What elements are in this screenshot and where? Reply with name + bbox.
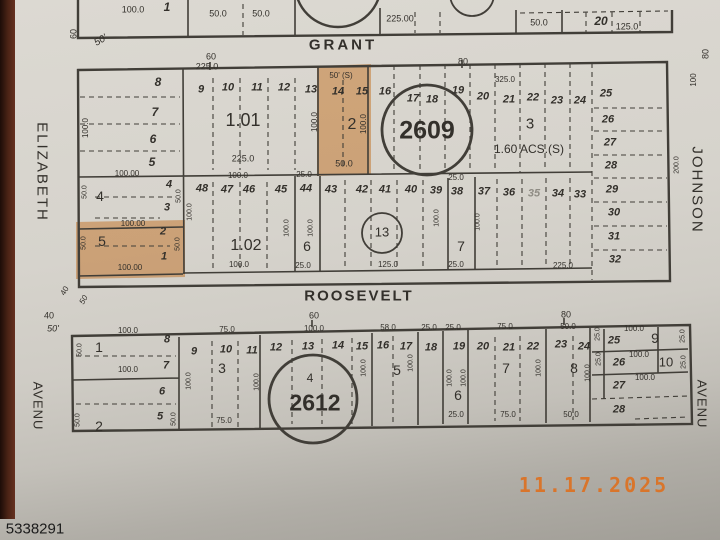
lot-circle-13: 13 bbox=[375, 226, 389, 239]
street-avenue-right: AVENU bbox=[696, 380, 709, 429]
map-label: 19 bbox=[453, 342, 465, 353]
map-label: 33 bbox=[574, 190, 586, 201]
map-label: 100.0 bbox=[82, 118, 90, 138]
map-label: 50.0 bbox=[81, 236, 88, 250]
map-label: 100.0 bbox=[361, 359, 368, 377]
map-label: 100.0 bbox=[624, 325, 644, 333]
map-label: 45 bbox=[275, 185, 287, 196]
map-label: 7 bbox=[152, 106, 159, 118]
map-label: 9 bbox=[191, 347, 197, 358]
map-label: 39 bbox=[430, 186, 442, 197]
parcel-2612-4: 4 bbox=[307, 372, 314, 384]
map-label: 225.0 bbox=[196, 63, 219, 72]
map-label: 25.0 bbox=[448, 174, 464, 182]
map-label: 40 bbox=[405, 185, 417, 196]
map-label: 25.0 bbox=[421, 324, 437, 332]
map-label: 50.0 bbox=[82, 185, 89, 199]
map-label: 100.00 bbox=[115, 170, 139, 178]
parcel-2: 2 bbox=[348, 117, 357, 133]
photo-id-number: 5338291 bbox=[6, 521, 64, 538]
parcel-4: 4 bbox=[96, 189, 104, 203]
map-label: 25.0 bbox=[680, 329, 687, 343]
map-label: 50.0 bbox=[252, 10, 270, 19]
map-label: 100.0 bbox=[434, 209, 441, 227]
map-label: 28 bbox=[605, 161, 617, 172]
map-label: 19 bbox=[452, 86, 464, 97]
parcel-2612-3: 3 bbox=[218, 361, 226, 375]
map-label: 15 bbox=[356, 87, 368, 98]
map-label: 14 bbox=[332, 87, 344, 98]
map-label: 50.0 bbox=[77, 343, 84, 357]
map-label: 50.0 bbox=[563, 411, 579, 419]
map-label: 50.0 bbox=[171, 412, 178, 426]
map-label: 28 bbox=[613, 405, 625, 416]
map-label: 21 bbox=[503, 95, 515, 106]
tax-map-photo: 100.0150.050.0225.0050.020125.06050'GRAN… bbox=[0, 0, 720, 540]
map-label: 100.0 bbox=[308, 219, 315, 237]
map-label: 17 bbox=[400, 342, 412, 353]
parcel-5: 5 bbox=[98, 234, 106, 248]
map-label: 40 bbox=[44, 312, 54, 321]
map-label: 9 bbox=[198, 85, 204, 96]
map-label: 1 bbox=[161, 252, 167, 263]
parcel-2612-9: 9 bbox=[651, 331, 659, 345]
parcel-2612-2: 2 bbox=[95, 419, 103, 433]
block-number-2612: 2612 bbox=[289, 392, 340, 415]
map-label: 11 bbox=[251, 83, 262, 94]
parcel-2612-5: 5 bbox=[393, 363, 401, 377]
map-label: 25.0 bbox=[295, 262, 311, 270]
map-label: 16 bbox=[379, 87, 391, 98]
map-label: 60 bbox=[309, 312, 319, 321]
map-label: 31 bbox=[608, 232, 620, 243]
map-label: 60 bbox=[70, 29, 79, 39]
map-label: 13 bbox=[302, 342, 314, 353]
parcel-3-area: 1.60 ACS.(S) bbox=[494, 143, 564, 155]
parcel-2612-6: 6 bbox=[454, 388, 462, 402]
map-label: 100.0 bbox=[187, 203, 194, 221]
map-label: 22 bbox=[527, 342, 539, 353]
map-label: 10 bbox=[220, 345, 232, 356]
map-label: 44 bbox=[300, 184, 312, 195]
map-label: 60 bbox=[206, 53, 216, 62]
parcel-7: 7 bbox=[457, 239, 465, 253]
parcel-1-02: 1.02 bbox=[230, 238, 261, 254]
map-label: 225.0 bbox=[553, 262, 573, 270]
map-label: 25.0 bbox=[445, 324, 461, 332]
parcel-1-01: 1.01 bbox=[225, 111, 260, 129]
map-label: 75.0 bbox=[216, 417, 232, 425]
map-label: 1 bbox=[164, 1, 171, 13]
map-label: 100.0 bbox=[475, 213, 482, 231]
map-label: 17 bbox=[407, 94, 419, 105]
parcel-6: 6 bbox=[303, 239, 311, 253]
parcel-3: 3 bbox=[526, 117, 534, 132]
map-label: 50' bbox=[47, 325, 59, 334]
map-label: 26 bbox=[602, 115, 614, 126]
map-label: 35 bbox=[528, 189, 540, 200]
map-label: 100.0 bbox=[118, 366, 138, 374]
map-label: 5 bbox=[157, 412, 163, 423]
map-label: 34 bbox=[552, 189, 564, 200]
partial-circle-top bbox=[295, 0, 381, 27]
map-label: 16 bbox=[377, 341, 389, 352]
map-label: 8 bbox=[164, 335, 170, 346]
map-label: 75.0 bbox=[497, 323, 513, 331]
map-label: 200.0 bbox=[674, 156, 681, 174]
map-label: 100.0 bbox=[629, 351, 649, 359]
map-label: 25.0 bbox=[448, 261, 464, 269]
map-lines bbox=[0, 0, 720, 540]
map-label: 25.0 bbox=[681, 355, 688, 369]
map-label: 325.0 bbox=[495, 76, 515, 84]
map-label: 4 bbox=[166, 180, 172, 191]
map-label: 100.0 bbox=[254, 373, 261, 391]
map-label: 42 bbox=[356, 185, 368, 196]
partial-circle-top-small bbox=[450, 0, 494, 16]
map-label: 24 bbox=[574, 96, 586, 107]
map-label: 100.0 bbox=[122, 6, 145, 15]
parcel-2612-1: 1 bbox=[95, 340, 103, 354]
map-label: 75.0 bbox=[219, 326, 235, 334]
map-label: 6 bbox=[150, 133, 157, 145]
map-label: 10 bbox=[222, 83, 234, 94]
map-label: 12 bbox=[270, 343, 282, 354]
map-label: 25 bbox=[600, 89, 612, 100]
map-label: 23 bbox=[551, 96, 563, 107]
parcel-2612-7: 7 bbox=[502, 361, 510, 375]
map-label: 50.0 bbox=[209, 10, 227, 19]
map-label: 100.0 bbox=[228, 172, 248, 180]
map-label: 24 bbox=[578, 342, 590, 353]
map-label: 25.0 bbox=[595, 327, 602, 341]
street-johnson: JOHNSON bbox=[690, 146, 705, 233]
block-number-2609: 2609 bbox=[399, 119, 455, 144]
map-label: 37 bbox=[478, 187, 490, 198]
map-label: 100 bbox=[690, 73, 698, 86]
parcel-2612-10: 10 bbox=[659, 356, 673, 369]
map-label: 18 bbox=[426, 95, 438, 106]
map-label: 225.0 bbox=[232, 155, 255, 164]
map-label: 48 bbox=[196, 184, 208, 195]
map-label: 125.0 bbox=[378, 261, 398, 269]
map-label: 22 bbox=[527, 93, 539, 104]
map-label: 23 bbox=[555, 340, 567, 351]
map-label: 46 bbox=[243, 185, 255, 196]
map-label: 225.00 bbox=[386, 15, 414, 24]
map-label: 27 bbox=[613, 381, 625, 392]
map-label: 50.0 bbox=[335, 160, 353, 169]
map-label: 80 bbox=[702, 49, 711, 59]
map-label: 38 bbox=[451, 187, 463, 198]
map-label: 100.0 bbox=[186, 372, 193, 390]
street-grant: GRANT bbox=[309, 38, 377, 53]
map-label: 8 bbox=[155, 76, 162, 88]
map-label: 14 bbox=[332, 341, 344, 352]
map-label: 20 bbox=[477, 342, 489, 353]
map-label: 50' (S) bbox=[329, 72, 352, 80]
street-elizabeth: ELIZABETH bbox=[35, 122, 50, 222]
map-label: 58.0 bbox=[380, 324, 396, 332]
map-label: 15 bbox=[356, 342, 368, 353]
map-label: 50.0 bbox=[176, 189, 183, 203]
table-edge bbox=[0, 0, 15, 519]
map-label: 26 bbox=[613, 358, 625, 369]
street-roosevelt: ROOSEVELT bbox=[304, 289, 413, 304]
map-label: 30 bbox=[608, 208, 620, 219]
map-label: 18 bbox=[425, 343, 437, 354]
map-label: 25.0 bbox=[296, 171, 312, 179]
map-label: 50.0 bbox=[530, 19, 548, 28]
date-stamp: 11.17.2025 bbox=[519, 473, 669, 497]
map-label: 5 bbox=[149, 156, 156, 168]
map-label: 100.0 bbox=[284, 219, 291, 237]
map-label: 21 bbox=[503, 343, 515, 354]
map-label: 125.0 bbox=[616, 23, 639, 32]
map-label: 80 bbox=[458, 58, 468, 67]
map-label: 2 bbox=[160, 227, 166, 238]
map-label: 36 bbox=[503, 188, 515, 199]
map-label: 27 bbox=[604, 138, 616, 149]
map-label: 100.0 bbox=[304, 325, 324, 333]
map-label: 25.0 bbox=[448, 411, 464, 419]
map-label: 100.0 bbox=[536, 359, 543, 377]
map-label: 100.00 bbox=[118, 264, 142, 272]
map-label: 29 bbox=[606, 185, 618, 196]
map-label: 100.0 bbox=[311, 112, 319, 132]
map-label: 20 bbox=[594, 15, 607, 27]
map-label: 100.0 bbox=[635, 374, 655, 382]
map-label: 100.0 bbox=[461, 369, 468, 387]
street-avenue-left: AVENU bbox=[32, 382, 45, 431]
map-label: 50.0 bbox=[175, 237, 182, 251]
map-label: 100.0 bbox=[118, 327, 138, 335]
map-label: 100.0 bbox=[408, 354, 415, 372]
map-label: 32 bbox=[609, 255, 621, 266]
map-label: 7 bbox=[163, 361, 169, 372]
map-label: 41 bbox=[379, 185, 391, 196]
map-label: 20 bbox=[477, 92, 489, 103]
map-label: 47 bbox=[221, 185, 233, 196]
map-label: 25 bbox=[608, 336, 620, 347]
map-label: 100.0 bbox=[229, 261, 249, 269]
map-label: 13 bbox=[305, 85, 317, 96]
map-label: 100.0 bbox=[585, 364, 592, 382]
map-label: 50.0 bbox=[75, 413, 82, 427]
map-label: 75.0 bbox=[500, 411, 516, 419]
map-label: 50.0 bbox=[560, 323, 576, 331]
map-label: 80 bbox=[561, 311, 571, 320]
map-label: 100.0 bbox=[360, 114, 368, 134]
map-label: 3 bbox=[164, 203, 170, 214]
map-label: 100.00 bbox=[121, 220, 145, 228]
parcel-2612-8: 8 bbox=[570, 361, 578, 375]
map-label: 100.0 bbox=[447, 369, 454, 387]
map-label: 25.0 bbox=[596, 352, 603, 366]
map-label: 43 bbox=[325, 185, 337, 196]
map-label: 11 bbox=[246, 346, 257, 357]
map-label: 12 bbox=[278, 83, 290, 94]
map-label: 6 bbox=[159, 387, 165, 398]
